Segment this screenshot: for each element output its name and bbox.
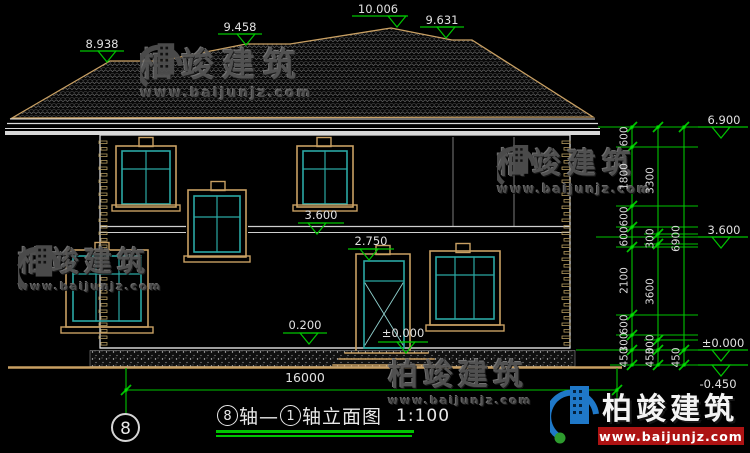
dim-chain-label: 3600: [646, 270, 657, 314]
title-underline-thin: [216, 435, 412, 437]
window-stair: [184, 182, 250, 263]
axis-bubble-8: 8: [111, 413, 140, 442]
dim-chain-label: 450: [620, 335, 631, 379]
window-2f-right: [293, 138, 357, 212]
dim-chain-label: 3300: [646, 158, 657, 202]
brand-logo: 柏竣建筑 www.baijunjz.com: [550, 380, 750, 453]
dim-chain-label: 600: [620, 215, 631, 259]
elevation-label-9458: 9.458: [218, 21, 262, 33]
title-axis-start: 8: [217, 405, 238, 426]
dim-chain-label: 450: [646, 335, 657, 379]
cad-elevation-screenshot: 柏竣建筑 www.baijunjz.com 柏竣建筑 www.baijunjz.…: [0, 0, 750, 453]
elevation-label-3600-r: 3.600: [700, 224, 748, 236]
window-2f-left: [112, 138, 180, 212]
title-underline-thick: [216, 430, 414, 433]
elevation-label-2750: 2.750: [348, 235, 394, 247]
window-1f-right: [426, 244, 504, 332]
elevation-label-3600-m: 3.600: [298, 209, 344, 221]
title-scale: 1:100: [396, 406, 450, 426]
brand-building-icon: [550, 380, 600, 446]
dim-chain-label: 600: [620, 115, 631, 159]
elevation-label-6900: 6.900: [700, 114, 748, 126]
logo-url-bar: www.baijunjz.com: [598, 427, 744, 445]
logo-brand-text: 柏竣建筑: [602, 384, 738, 428]
dim-chain-label: 300: [646, 217, 657, 261]
dim-chain-label: 1800: [620, 154, 631, 198]
dim-chain-label: 2100: [620, 259, 631, 303]
dim-chain-label: 450: [672, 335, 683, 379]
title-axis-end: 1: [280, 405, 301, 426]
dim-chain-label: 6900: [672, 216, 683, 260]
overall-width-label: 16000: [270, 372, 340, 384]
elevation-label-0200: 0.200: [283, 319, 327, 331]
title-suffix: 轴立面图: [302, 402, 382, 429]
title-joiner: 轴—: [239, 402, 279, 429]
logo-url-text: www.baijunjz.com: [599, 429, 743, 444]
drawing-title: 8 轴— 1 轴立面图 1:100: [216, 402, 450, 429]
elevation-label-9631: 9.631: [420, 14, 464, 26]
elevation-label-zero-r: ±0.000: [697, 337, 749, 349]
elevation-label-10006: 10.006: [350, 3, 406, 15]
elevation-label-zero-d: ±0.000: [378, 327, 428, 339]
elevation-label-8938: 8.938: [80, 38, 124, 50]
